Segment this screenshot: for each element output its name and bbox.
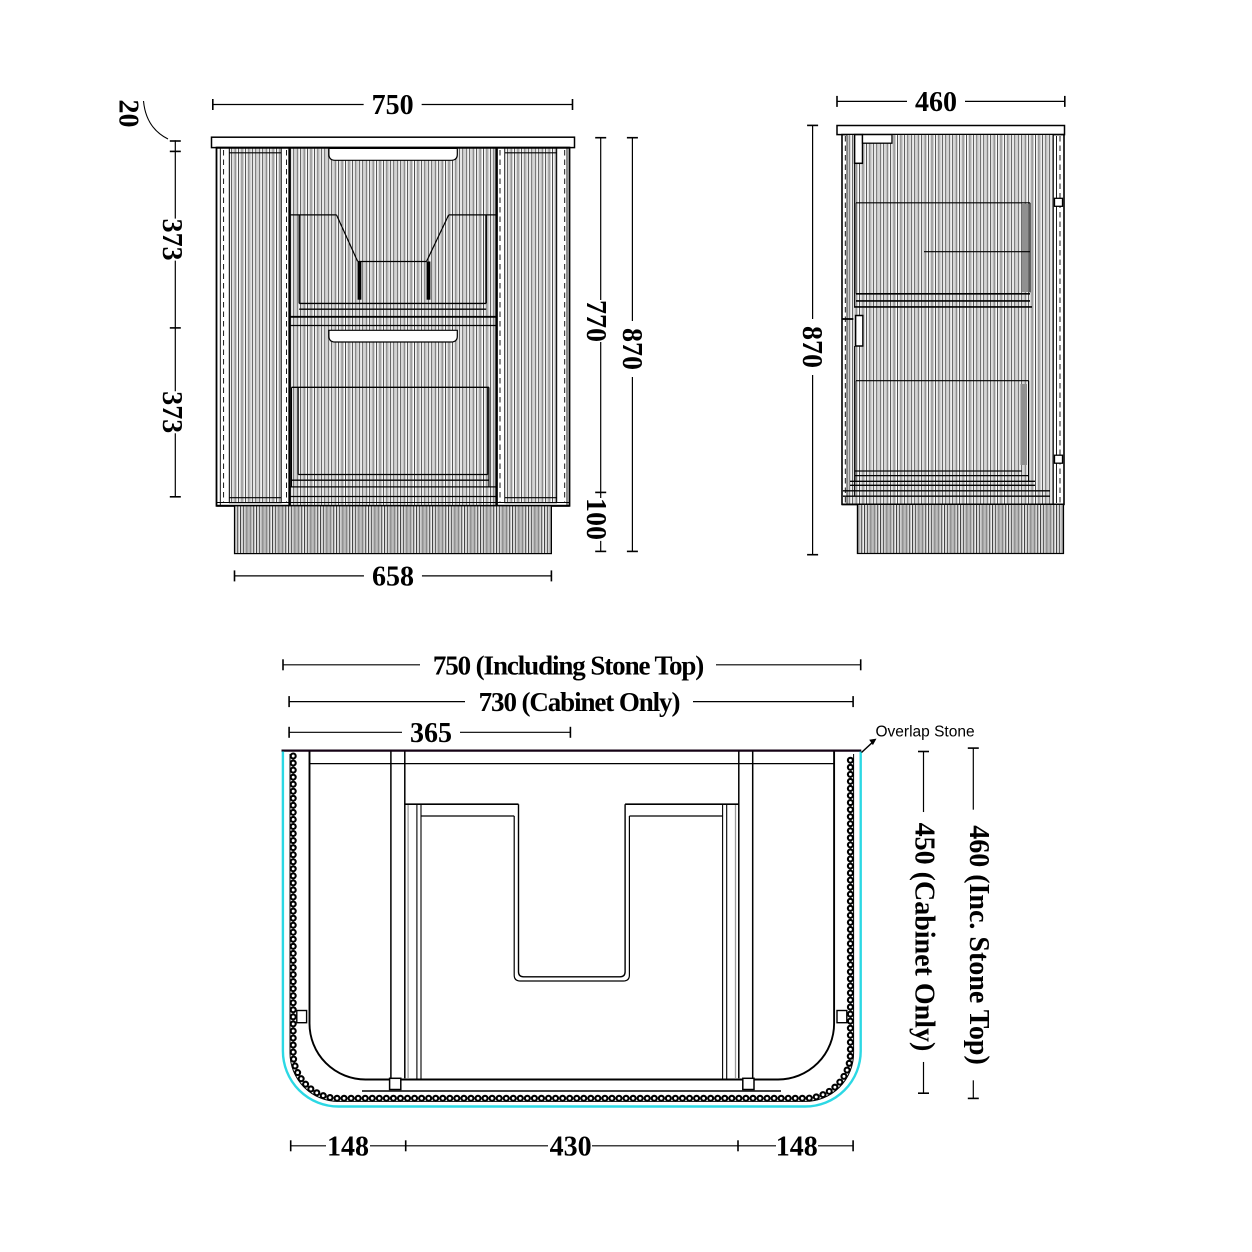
svg-text:373: 373 — [156, 219, 187, 261]
svg-text:460 (Inc. Stone Top): 460 (Inc. Stone Top) — [963, 825, 994, 1065]
svg-text:730 (Cabinet Only): 730 (Cabinet Only) — [479, 687, 680, 717]
svg-text:750: 750 — [372, 90, 414, 121]
svg-text:148: 148 — [776, 1131, 818, 1162]
svg-text:Overlap Stone: Overlap Stone — [876, 724, 975, 741]
svg-text:870: 870 — [616, 328, 647, 370]
svg-text:100: 100 — [580, 498, 611, 540]
svg-text:148: 148 — [327, 1131, 369, 1162]
svg-text:750 (Including Stone Top): 750 (Including Stone Top) — [433, 650, 703, 680]
svg-text:20: 20 — [113, 100, 144, 128]
svg-text:870: 870 — [796, 326, 827, 368]
svg-text:770: 770 — [580, 300, 611, 342]
svg-text:373: 373 — [156, 391, 187, 433]
svg-text:365: 365 — [410, 718, 452, 749]
svg-text:460: 460 — [915, 87, 957, 118]
svg-text:658: 658 — [372, 562, 414, 593]
svg-text:450 (Cabinet Only): 450 (Cabinet Only) — [909, 823, 940, 1052]
svg-text:430: 430 — [550, 1131, 592, 1162]
